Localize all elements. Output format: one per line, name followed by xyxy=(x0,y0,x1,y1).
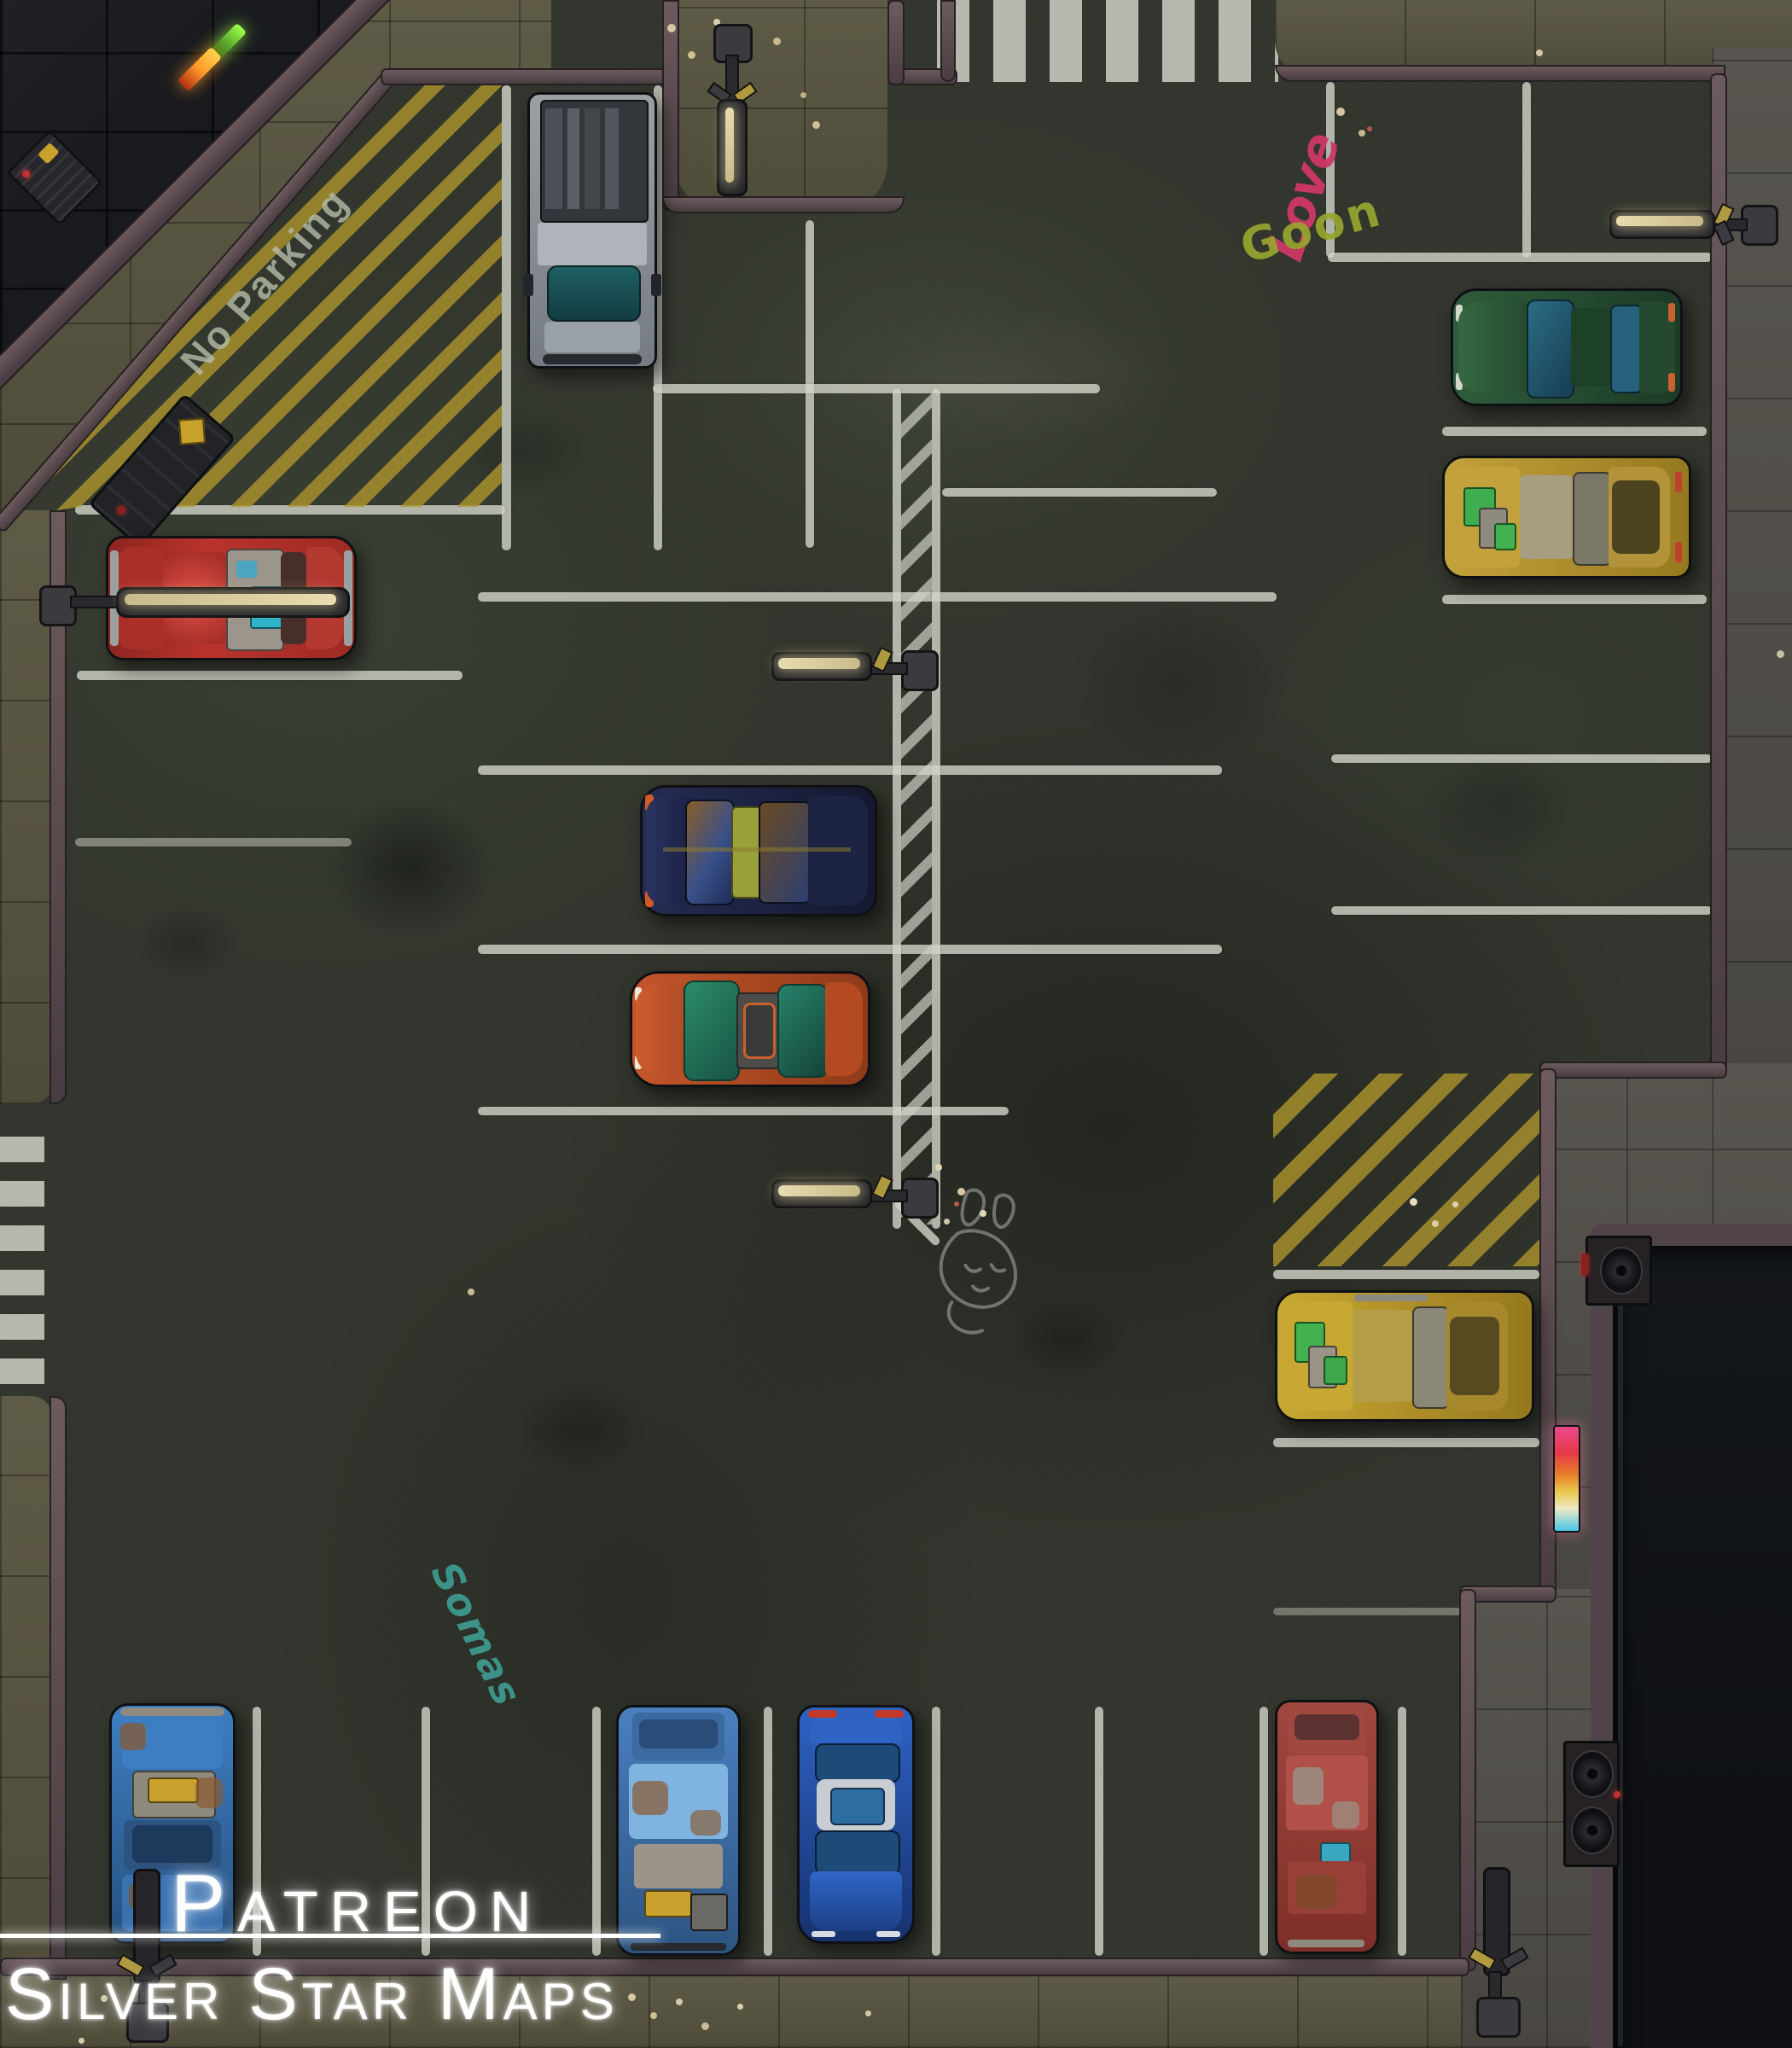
front-bumper xyxy=(120,1708,224,1716)
watermark-separator-line xyxy=(0,1934,660,1938)
rear-window xyxy=(1450,1317,1499,1395)
stain-oil xyxy=(324,794,495,939)
wall-fan-unit xyxy=(1585,1236,1652,1306)
trash-dot xyxy=(701,2022,709,2030)
engine-manifold-yellow xyxy=(644,1890,692,1917)
parking-line-vertical xyxy=(1398,1707,1406,1956)
curb-right-mid-top xyxy=(1539,1062,1727,1079)
neon-strip-sign xyxy=(1553,1425,1580,1533)
hazard-diamond xyxy=(178,418,206,445)
truck-mirror xyxy=(651,274,661,296)
trash-dot xyxy=(865,2010,871,2016)
curb-bulge-bottom xyxy=(662,196,905,213)
windshield xyxy=(1412,1306,1450,1409)
tail-light xyxy=(1675,472,1682,492)
parking-line-vertical xyxy=(502,85,511,550)
rust-patch xyxy=(632,1781,668,1815)
parking-line-vertical xyxy=(1522,82,1531,258)
truck-cargo-pipe xyxy=(545,108,562,209)
trash-dot xyxy=(980,1210,986,1217)
curb-top-shelf xyxy=(381,68,678,85)
trash-dot xyxy=(1367,126,1372,131)
truck-cargo-pipe xyxy=(605,108,619,209)
parking-line-tbar xyxy=(653,384,1100,393)
parking-line-horizontal xyxy=(1442,427,1707,436)
trash-dot xyxy=(773,38,781,45)
car-yellow-taxi xyxy=(1275,1290,1534,1422)
median-line-right xyxy=(932,388,940,1229)
status-light-red xyxy=(1581,1254,1588,1276)
rear-window xyxy=(1612,480,1660,554)
tail-light xyxy=(1668,303,1675,322)
rear-glass xyxy=(1610,305,1643,393)
crosswalk-left xyxy=(0,1137,44,1384)
parking-line-horizontal xyxy=(75,838,352,847)
parking-line-vertical xyxy=(932,1707,940,1956)
truck-cargo-pipe xyxy=(585,108,600,209)
streetlamp-top-center xyxy=(705,17,756,196)
trash-dot xyxy=(954,1201,959,1207)
tail-light xyxy=(1668,373,1675,392)
streetlamp-median-upper xyxy=(766,642,937,689)
streetlamp-bottom-right xyxy=(1469,1860,1524,2036)
sunroof xyxy=(830,1788,885,1825)
parking-line-horizontal xyxy=(1331,754,1712,763)
canopy-glass-rear xyxy=(777,984,829,1078)
car-blue-sport-bottommid xyxy=(797,1705,915,1944)
lamp-pole xyxy=(70,596,121,608)
front-bumper xyxy=(631,1943,726,1951)
truck-hood xyxy=(544,322,640,352)
car-navy-sedan xyxy=(640,785,877,916)
parking-lot-battle-map: No Parking Love Goon Somas Patreon Silve… xyxy=(0,0,1792,2048)
parking-line-vertical xyxy=(1095,1707,1103,1956)
headlight xyxy=(876,1931,900,1937)
car-blue-rust-bottommid xyxy=(616,1705,741,1956)
trash-dot xyxy=(1452,1201,1458,1207)
parking-line-horizontal xyxy=(478,765,1222,775)
trash-dot xyxy=(650,2012,657,2019)
parking-line-horizontal xyxy=(1331,906,1712,915)
trash-dot xyxy=(737,2004,743,2010)
stain-light xyxy=(819,307,1178,444)
trash-dot xyxy=(1432,1220,1439,1227)
fan-blade-circle xyxy=(1571,1750,1614,1798)
front-bumper xyxy=(1288,1940,1364,1947)
parking-line-vertical xyxy=(592,1707,601,1956)
graffiti-teal: Somas xyxy=(422,1555,532,1713)
parking-line-vertical xyxy=(1260,1707,1268,1956)
parking-line-vertical xyxy=(764,1707,772,1956)
parking-line-horizontal xyxy=(1328,253,1712,262)
lamp-tube xyxy=(778,1185,860,1196)
hazard-sticker xyxy=(38,143,59,164)
trash-dot xyxy=(1536,49,1543,56)
car-green-sedan xyxy=(1451,288,1683,406)
stain-dark xyxy=(137,905,239,981)
rear-canopy-glass xyxy=(759,801,812,904)
tail-light xyxy=(808,1710,837,1718)
worn-patch xyxy=(1332,1801,1359,1829)
tail-light xyxy=(1675,542,1682,562)
median-line-left xyxy=(893,388,901,1229)
lamp-tube xyxy=(725,108,734,183)
car-gray-truck xyxy=(527,92,657,369)
roof xyxy=(1571,308,1610,387)
tail-light xyxy=(875,1710,904,1718)
lamp-tube xyxy=(1616,216,1703,226)
parking-line-horizontal xyxy=(478,945,1222,954)
sunroof xyxy=(743,1003,776,1059)
fan-blade-circle xyxy=(1571,1807,1614,1854)
streetlamp-left xyxy=(34,579,350,623)
trash-dot xyxy=(1410,1198,1417,1206)
canopy-glass-front xyxy=(684,980,740,1081)
parking-line-horizontal xyxy=(478,592,1277,602)
curb-top-right xyxy=(1275,65,1725,82)
mid-panel xyxy=(1520,475,1573,559)
rust-patch xyxy=(1296,1875,1337,1909)
car-yellow-muscle xyxy=(1442,456,1691,579)
lower-panel xyxy=(634,1844,723,1888)
rust-patch xyxy=(120,1723,146,1750)
rear-window xyxy=(1295,1714,1359,1740)
curb-bulge-right xyxy=(887,0,905,85)
engine-manifold-yellow xyxy=(148,1777,199,1803)
windshield xyxy=(1527,300,1574,399)
trash-dot xyxy=(676,1999,683,2005)
trash-dot xyxy=(944,1219,950,1225)
status-light-red xyxy=(115,504,127,516)
trash-dot xyxy=(1359,130,1365,137)
fan-blade-circle xyxy=(1600,1247,1643,1295)
trash-dot xyxy=(688,51,695,59)
stain-oil xyxy=(512,1382,649,1476)
alley-inner-piping xyxy=(1618,1254,1623,2046)
crosswalk-top xyxy=(937,0,1278,82)
trash-dot xyxy=(800,92,806,98)
gold-trim-line xyxy=(663,847,851,852)
truck-cargo-pipe xyxy=(567,108,579,209)
rear-glass xyxy=(815,1743,900,1783)
truck-mirror xyxy=(523,274,533,296)
worn-patch xyxy=(1293,1767,1324,1805)
windshield xyxy=(1573,472,1612,566)
engine-block-green xyxy=(1494,523,1516,550)
engine-block-green xyxy=(1324,1356,1347,1385)
trash-dot xyxy=(628,1993,636,2001)
roof-band xyxy=(731,806,762,899)
lamp-tube xyxy=(778,658,860,669)
headlight xyxy=(812,1931,835,1937)
mid-panel xyxy=(1353,1310,1412,1402)
trash-dot xyxy=(957,1188,965,1196)
parking-line-horizontal xyxy=(77,671,463,680)
streetlamp-median-lower xyxy=(766,1169,937,1217)
streetlamp-top-right xyxy=(1604,198,1775,246)
lamp-base xyxy=(1476,1997,1521,2038)
trash-dot xyxy=(79,2038,84,2044)
equipment-box xyxy=(690,1894,728,1931)
trash-dot xyxy=(667,24,676,32)
nose xyxy=(636,984,684,1074)
stain-dark xyxy=(1067,597,1289,768)
median-hatch xyxy=(901,393,932,1225)
status-light-red xyxy=(20,168,32,179)
curb-crosswalk-left-edge xyxy=(940,0,956,82)
parking-line-horizontal xyxy=(1273,1438,1539,1447)
double-fan-unit xyxy=(1563,1741,1620,1867)
rear-deck xyxy=(810,1718,902,1743)
rust-patch xyxy=(195,1777,223,1808)
truck-windshield xyxy=(547,265,641,322)
yellow-hatch-zone-right xyxy=(1273,1073,1539,1266)
car-red-bottomright xyxy=(1275,1700,1379,1954)
windshield xyxy=(815,1830,900,1875)
hood xyxy=(810,1871,902,1931)
rust-patch xyxy=(690,1810,721,1836)
car-orange-sports xyxy=(630,971,870,1087)
trash-dot xyxy=(1777,650,1784,658)
windshield-iridescent xyxy=(685,800,735,905)
status-light-red xyxy=(1614,1791,1620,1798)
truck-bumper xyxy=(543,354,642,364)
truck-cab-panel xyxy=(538,223,647,265)
lamp-tube xyxy=(125,594,336,605)
parking-line-horizontal xyxy=(1273,1270,1539,1279)
rear-glass xyxy=(639,1719,718,1748)
parking-line-horizontal xyxy=(1442,595,1707,604)
sidewalk-left-lower xyxy=(0,1396,53,1980)
roof-rack xyxy=(1354,1295,1428,1301)
curb-left-lower xyxy=(49,1396,67,1980)
watermark-silver-star-maps: Silver Star Maps xyxy=(5,1952,619,2037)
hood xyxy=(1458,302,1532,393)
trash-dot xyxy=(812,121,820,129)
trash-dot xyxy=(1336,108,1345,116)
engine-box-blue xyxy=(236,561,257,578)
trash-dot xyxy=(468,1289,474,1295)
parking-line-horizontal xyxy=(942,488,1217,497)
tail xyxy=(825,982,863,1076)
